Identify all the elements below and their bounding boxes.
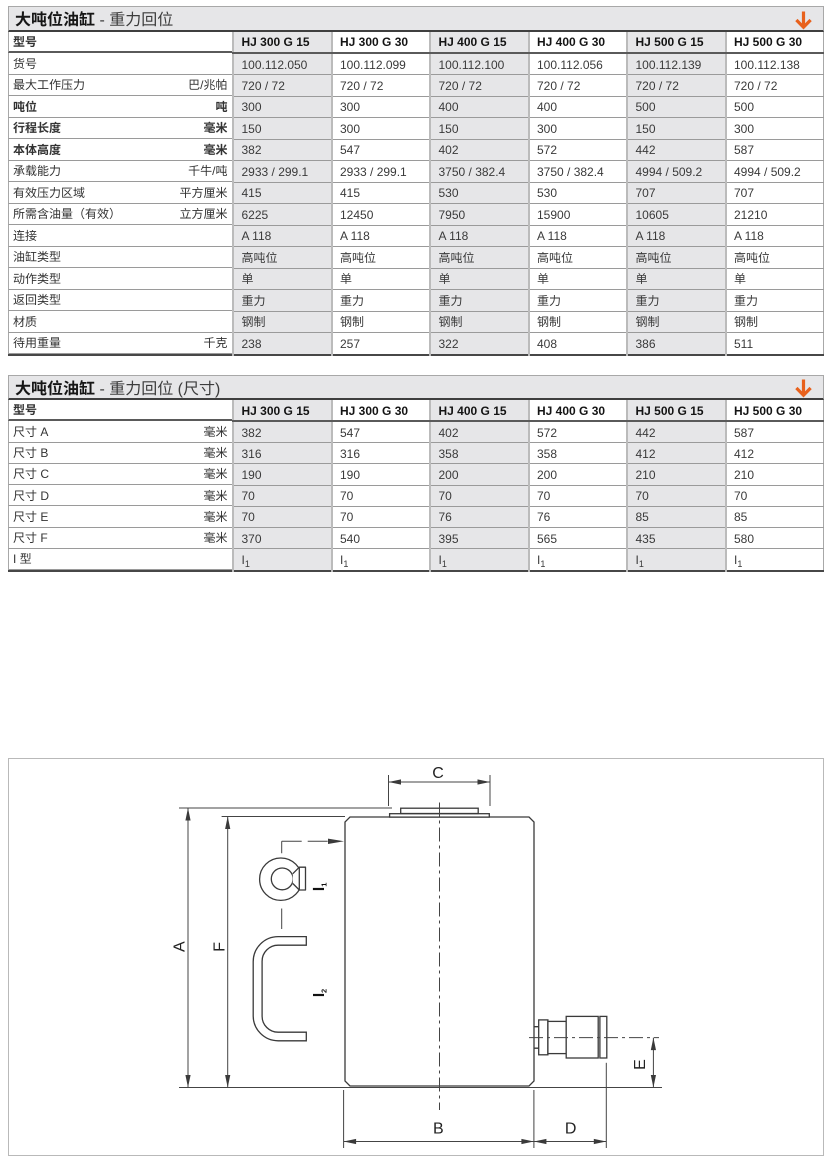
svg-text:B: B [433, 1121, 444, 1138]
svg-text:1: 1 [319, 883, 328, 887]
svg-text:D: D [565, 1121, 577, 1138]
svg-text:2: 2 [320, 989, 329, 993]
svg-text:A: A [172, 941, 189, 952]
svg-text:C: C [432, 765, 444, 782]
svg-text:E: E [632, 1059, 649, 1070]
svg-text:F: F [212, 942, 229, 952]
